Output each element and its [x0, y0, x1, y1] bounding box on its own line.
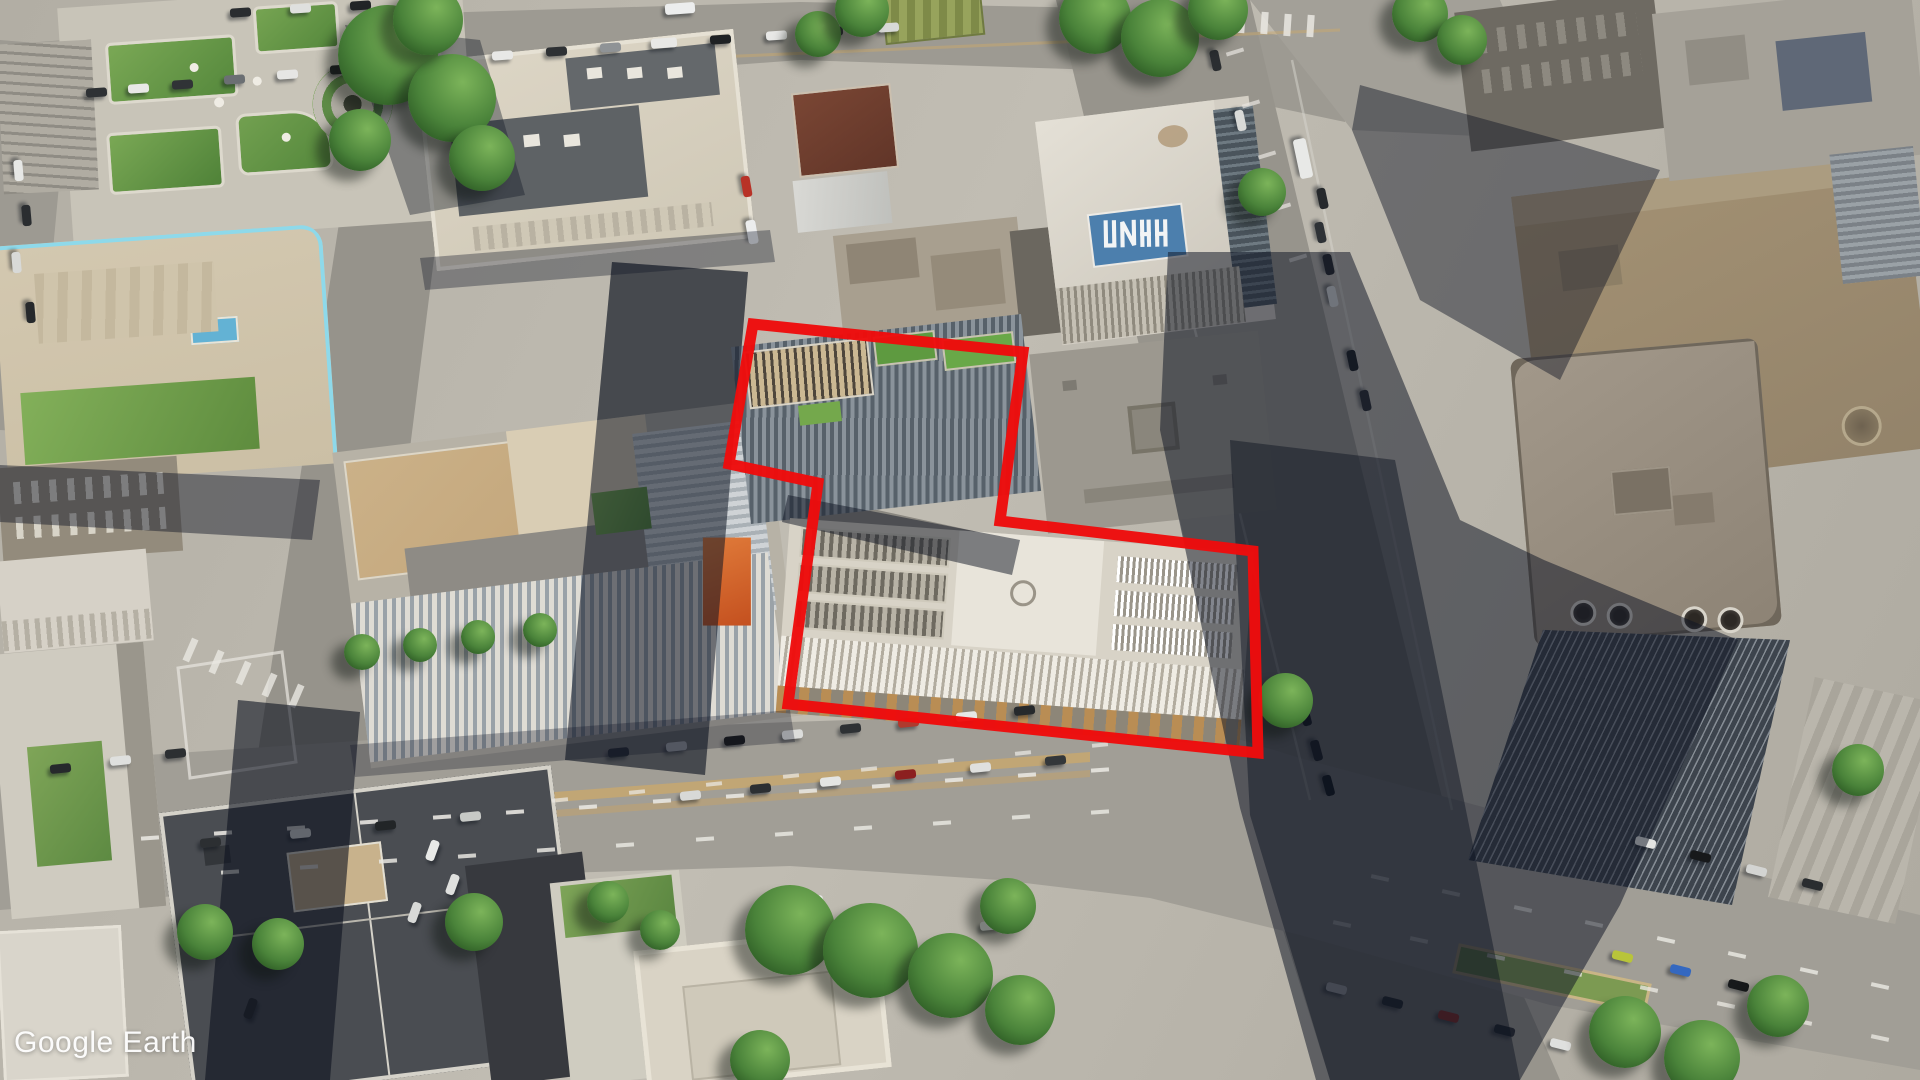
tree — [344, 634, 380, 670]
google-earth-watermark: Google Earth — [14, 1026, 197, 1060]
tree — [449, 125, 515, 191]
tree — [730, 1030, 790, 1080]
tree — [523, 613, 557, 647]
tree — [1747, 975, 1809, 1037]
tree — [1437, 15, 1487, 65]
tree — [177, 904, 233, 960]
tree — [1664, 1020, 1740, 1080]
tree — [1589, 996, 1661, 1068]
tree — [1258, 673, 1313, 728]
tree — [985, 975, 1055, 1045]
tree — [908, 933, 993, 1018]
tree — [795, 11, 841, 57]
tree — [461, 620, 495, 654]
tree — [980, 878, 1036, 934]
tree — [329, 109, 391, 171]
tree — [1832, 744, 1884, 796]
vegetation — [0, 0, 1920, 1080]
tree — [823, 903, 918, 998]
tree — [745, 885, 835, 975]
tree — [1238, 168, 1286, 216]
tree — [403, 628, 437, 662]
tree — [640, 910, 680, 950]
google-earth-viewport[interactable]: Google Earth — [0, 0, 1920, 1080]
tree — [835, 0, 889, 37]
tree — [445, 893, 503, 951]
tree — [252, 918, 304, 970]
tree — [1059, 0, 1131, 54]
tree — [587, 881, 629, 923]
